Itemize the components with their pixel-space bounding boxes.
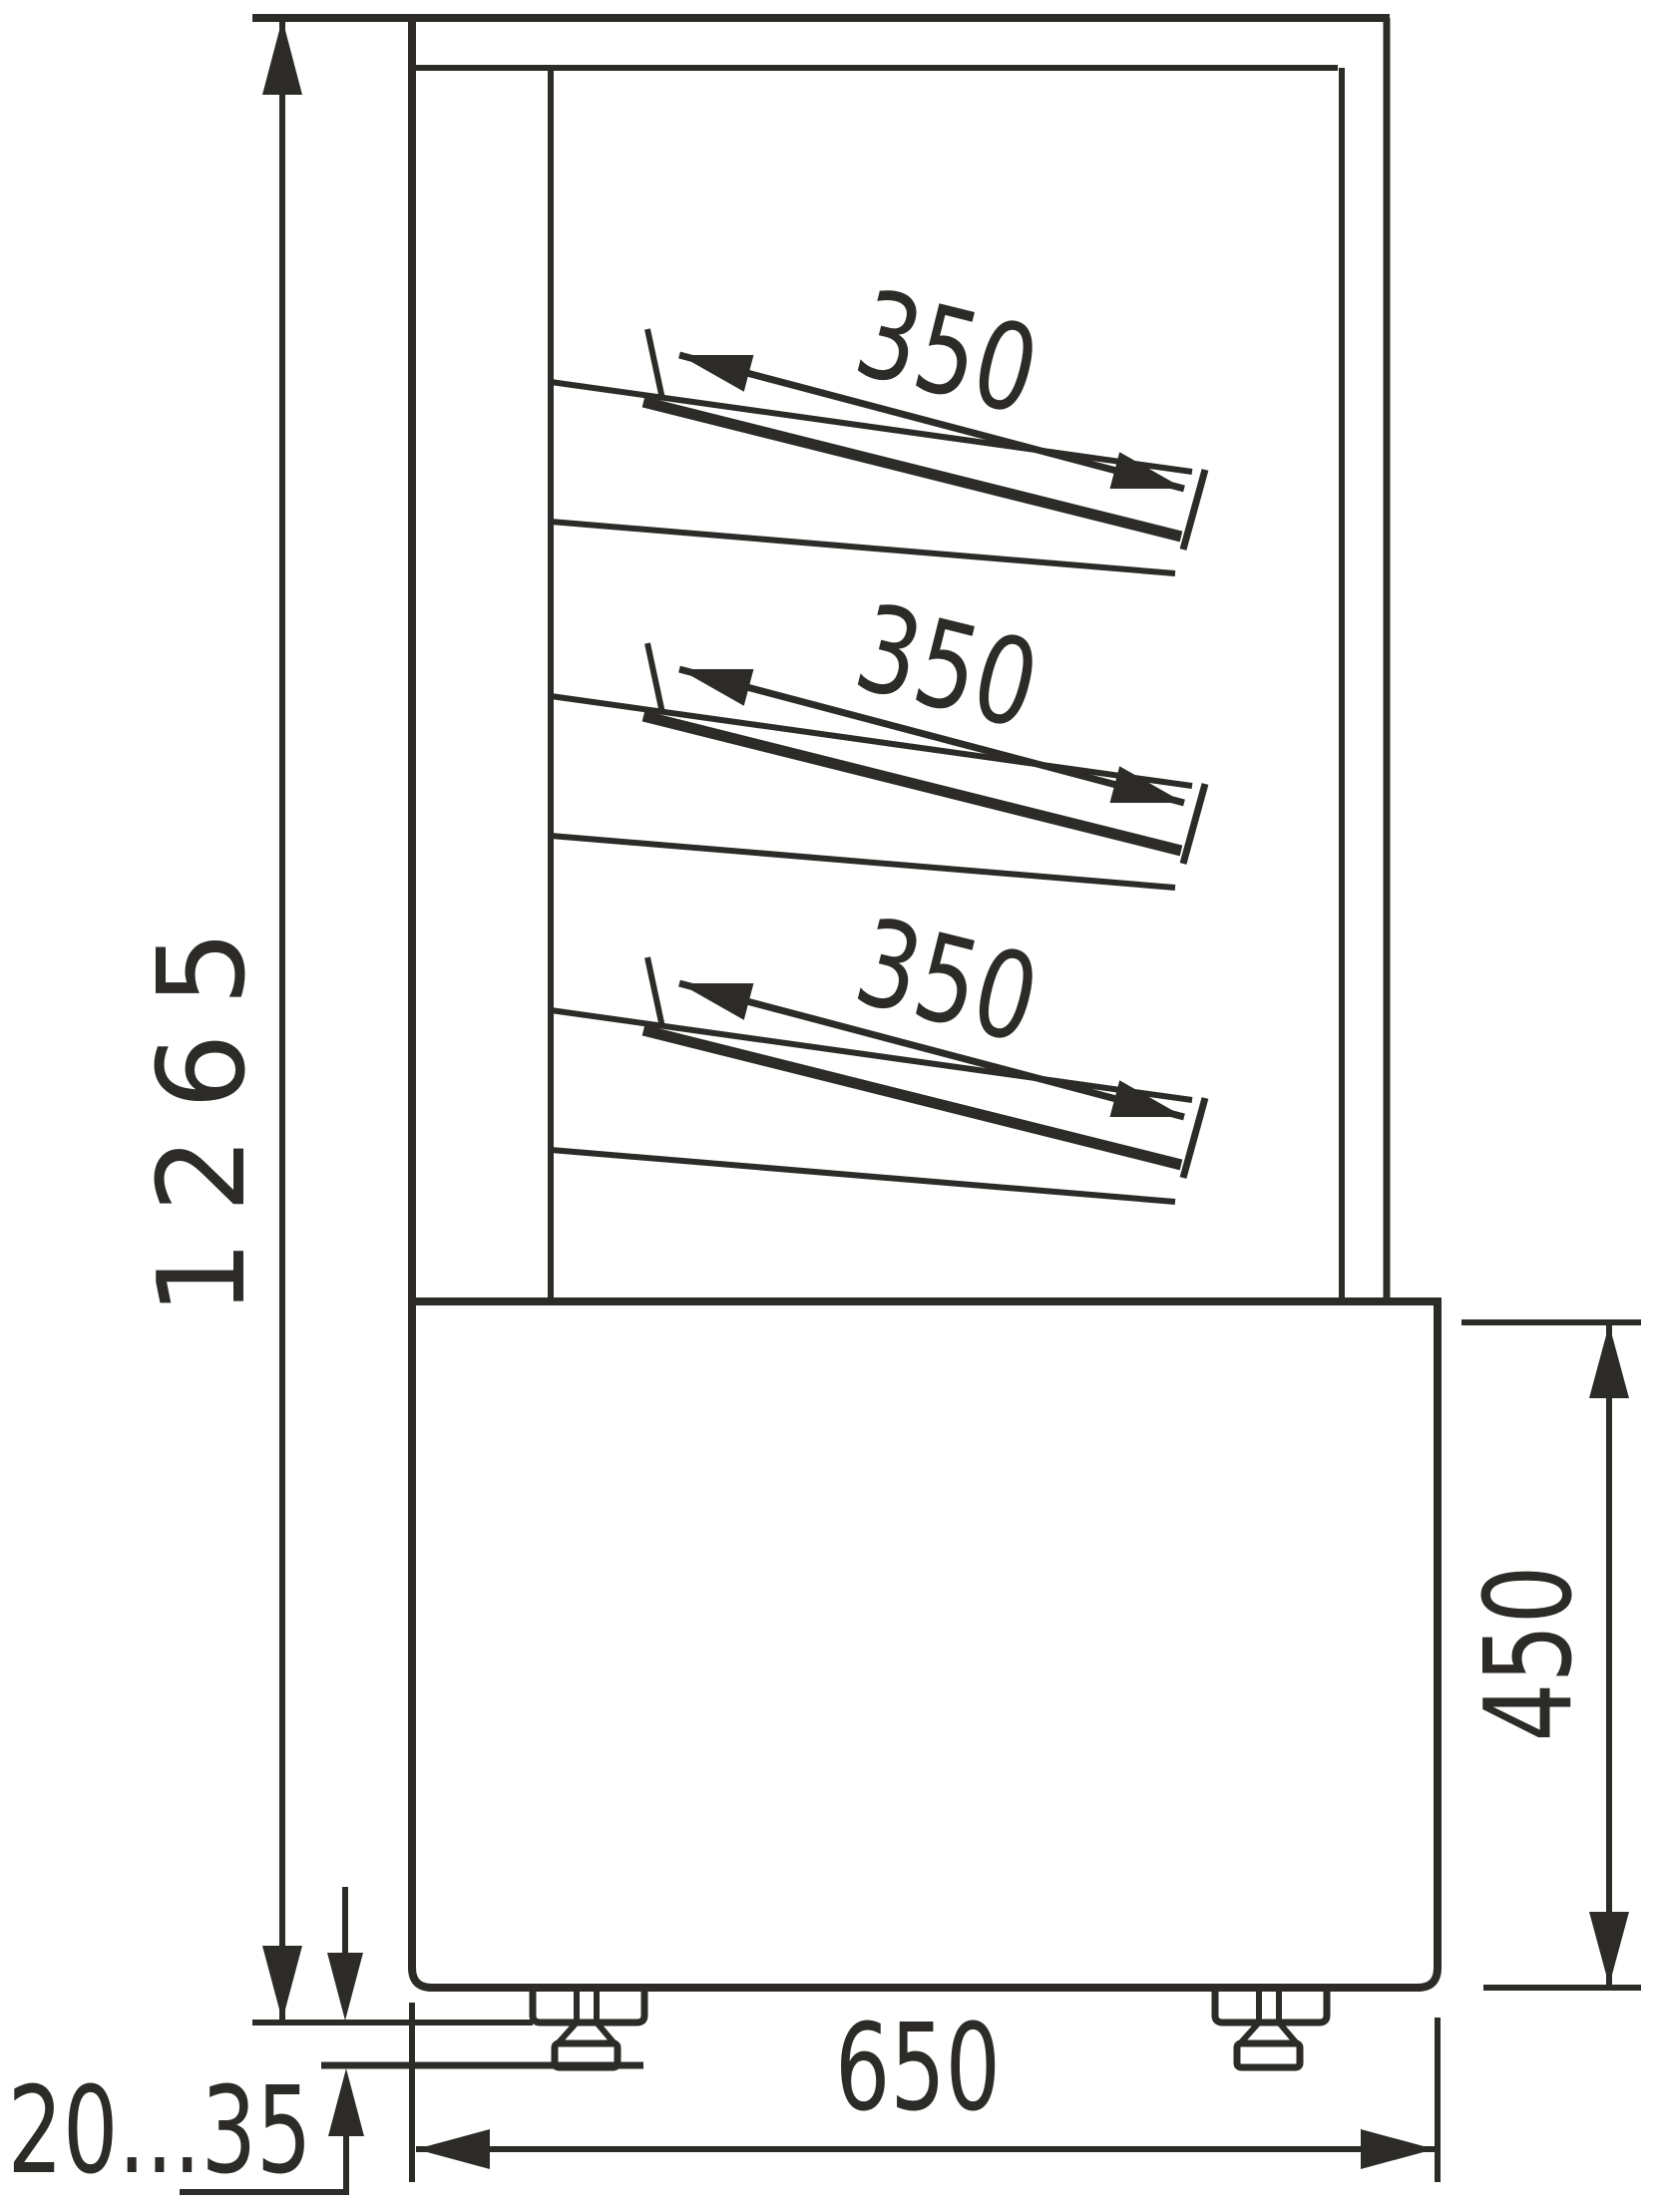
shelf-1-bottom-line [551, 522, 1175, 573]
foot-range-dimension: 20...35 [8, 1887, 644, 2201]
base-depth-arrow-left [416, 2129, 490, 2169]
height-dim-arrow-up [262, 19, 302, 95]
shelf-3-arrow-left [674, 965, 753, 1020]
shelf-2-front-lip [1183, 784, 1205, 864]
shelf-2-bottom-line [551, 836, 1175, 888]
overall-height-dimension: 1265 [134, 19, 533, 2023]
shelf-2: 350 [551, 578, 1205, 888]
right-foot-bracket [1215, 1988, 1327, 2023]
shelf-3-bottom-line [551, 1150, 1175, 1202]
shelf-2-arrow-left [674, 651, 753, 706]
foot-dim-arrow-down [327, 1953, 363, 2021]
base-depth-arrow-right [1361, 2129, 1435, 2169]
base-height-arrow-up [1589, 1324, 1629, 1398]
shelf-3-arrow-right [1110, 1080, 1189, 1135]
base-height-dimension: 450 [1460, 1322, 1641, 1988]
left-adjustable-foot [533, 1988, 644, 2067]
shelf-2-depth-label: 350 [843, 578, 1050, 756]
shelf-3-depth-label: 350 [843, 893, 1050, 1070]
shelf-1-dim-tick [647, 329, 662, 399]
shelf-3: 350 [551, 893, 1205, 1202]
height-dim-arrow-down [262, 1946, 302, 2021]
shelf-1-arrow-right [1110, 452, 1189, 507]
shelf-1-depth-label: 350 [843, 264, 1050, 442]
base-height-label: 450 [1460, 1566, 1599, 1742]
shelf-1: 350 [551, 264, 1205, 573]
overall-height-label: 1265 [134, 930, 272, 1316]
foot-dim-arrow-up [328, 2068, 364, 2136]
shelf-3-dim-tick [647, 957, 662, 1027]
drawing-canvas: 350 350 350 [0, 0, 1655, 2212]
base-box [412, 1301, 1438, 1988]
shelf-2-dim-tick [647, 643, 662, 713]
right-foot-pad [1237, 2043, 1300, 2067]
base-depth-label: 650 [835, 2000, 1001, 2138]
cabinet-outline [252, 18, 1438, 1988]
technical-drawing-svg: 350 350 350 [0, 0, 1655, 2212]
shelf-1-front-lip [1183, 470, 1205, 550]
foot-range-label: 20...35 [8, 2062, 312, 2201]
left-foot-bracket [533, 1988, 644, 2023]
right-adjustable-foot [1215, 1988, 1327, 2067]
shelf-3-front-lip [1183, 1098, 1205, 1178]
base-height-arrow-down [1589, 1912, 1629, 1986]
shelf-1-arrow-left [674, 337, 753, 392]
shelf-2-arrow-right [1110, 766, 1189, 821]
